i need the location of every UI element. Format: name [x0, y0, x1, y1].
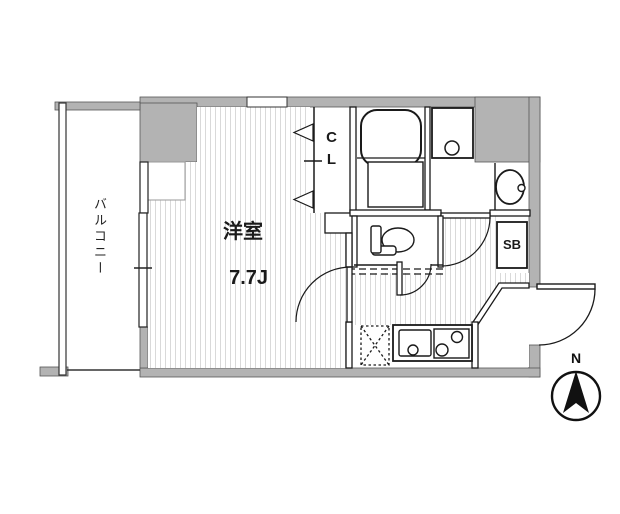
- bath-washing-floor: [368, 162, 423, 207]
- structural-block-top-left: [140, 103, 197, 162]
- north-label: N: [561, 350, 591, 366]
- top-wall-window: [247, 97, 287, 107]
- toilet-right-wall: [438, 216, 443, 267]
- kitchen: [361, 322, 478, 368]
- balcony-rail: [59, 103, 66, 375]
- entrance: [537, 284, 595, 345]
- pipe-space-box: [325, 213, 353, 233]
- wall-segment: [490, 210, 530, 216]
- toilet-left-wall: [352, 216, 357, 267]
- bathroom: [357, 107, 430, 210]
- bottom-wall: [140, 368, 540, 377]
- bathroom-right-wall: [425, 107, 430, 210]
- washroom-door-leaf: [441, 213, 490, 218]
- entrance-door-swing: [539, 289, 595, 345]
- washroom: [495, 163, 525, 210]
- room-corner-recess: [148, 162, 185, 200]
- closet-label: CL: [323, 129, 340, 173]
- toilet-door-leaf: [397, 262, 402, 295]
- balcony-top-cap: [55, 102, 140, 110]
- wall-segment: [346, 233, 352, 267]
- refrigerator-space-icon: [361, 326, 389, 365]
- room-name: 洋室: [223, 221, 263, 243]
- entrance-door-leaf: [537, 284, 595, 289]
- room-door-leaf: [347, 267, 352, 322]
- right-wall-upper: [529, 97, 540, 287]
- burner-icon: [452, 332, 463, 343]
- north-compass-icon: [552, 371, 600, 420]
- wall-segment: [350, 210, 441, 216]
- main-room-label: 洋室 7.7J: [196, 221, 290, 290]
- shoe-box-label: SB: [497, 237, 527, 252]
- toilet-tank-icon: [371, 226, 381, 253]
- closet-back-wall: [350, 107, 356, 213]
- wall-below-window: [140, 327, 148, 368]
- room-size: 7.7J: [229, 267, 268, 289]
- wall-above-window: [140, 162, 148, 213]
- burner-icon: [436, 344, 448, 356]
- balcony-label: バルコニー: [90, 197, 109, 277]
- sliding-window: [139, 213, 147, 327]
- sink-drain-icon: [408, 345, 418, 355]
- floor-plan-page: バルコニー 洋室 7.7J CL SB N: [0, 0, 620, 514]
- drain-icon: [445, 141, 459, 155]
- faucet-icon: [518, 185, 525, 192]
- wall-segment: [346, 322, 352, 368]
- laundry-space: [432, 108, 473, 158]
